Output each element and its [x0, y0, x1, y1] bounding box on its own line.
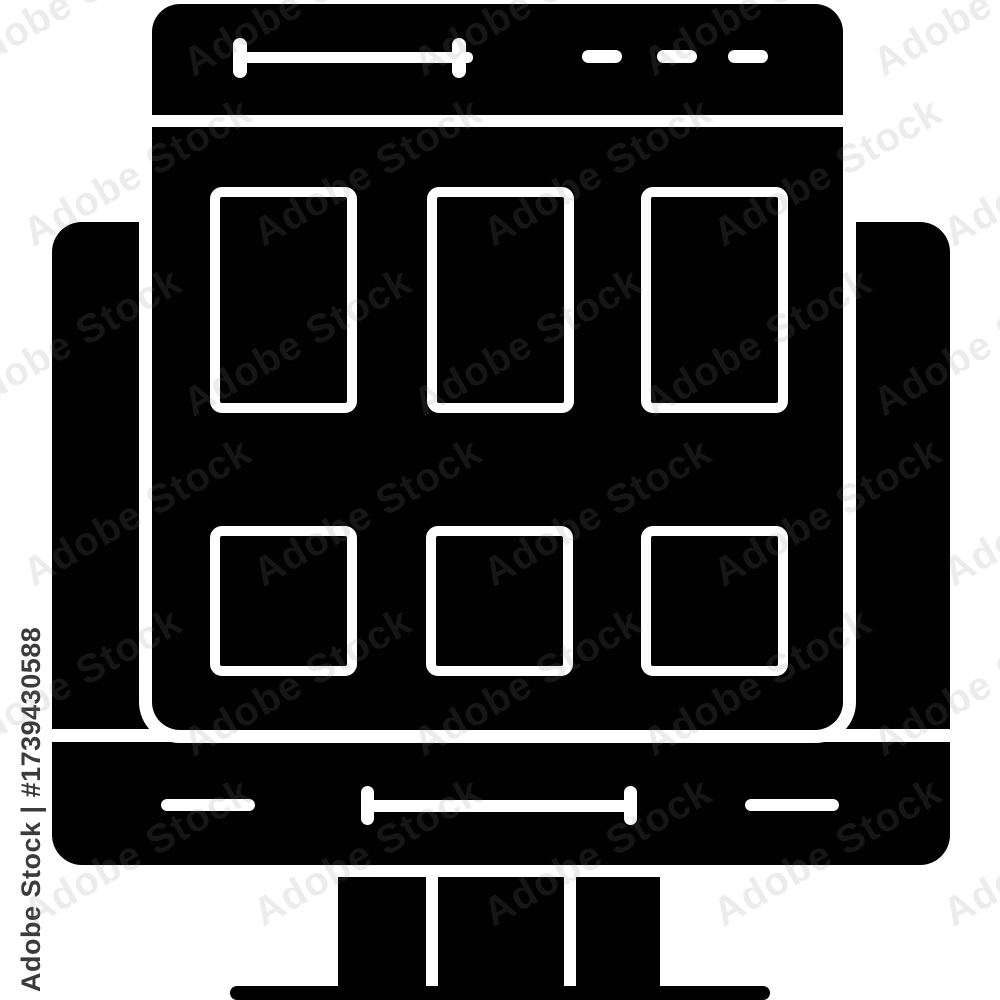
watermark-id-text: Adobe Stock | #1739430588: [16, 627, 47, 992]
watermark-tile: Adobe Stock: [866, 0, 1000, 86]
layout-panel-square-1: [210, 526, 357, 676]
layout-panel-tall-3: [641, 187, 788, 413]
layout-panel-square-2: [426, 526, 573, 676]
watermark-tile: Adobe Stock: [936, 89, 1000, 256]
stand-gap: [426, 877, 438, 989]
toolbar-dash-icon: [728, 50, 768, 63]
layout-panel-tall-2: [427, 187, 574, 413]
monitor-base-icon: [230, 986, 770, 1000]
stock-icon-canvas: Adobe Stock | #1739430588 Adobe StockAdo…: [0, 0, 1000, 1000]
bezel-center-line-right-cap: [624, 786, 637, 825]
toolbar-divider: [152, 115, 843, 127]
monitor-screen-divider: [52, 729, 950, 742]
bezel-right-dash-icon: [745, 799, 839, 811]
monitor-stand-icon: [338, 877, 660, 989]
toolbar-dash-icon: [582, 50, 622, 63]
bezel-left-dash-icon: [161, 799, 255, 811]
address-bar-icon: [240, 52, 473, 63]
toolbar-dash-icon: [657, 50, 697, 63]
address-bar-right-cap: [452, 38, 466, 78]
stand-gap: [564, 877, 576, 989]
layout-panel-tall-1: [210, 187, 357, 413]
bezel-center-line-icon: [367, 800, 630, 812]
browser-window-icon: [152, 4, 843, 730]
layout-panel-square-3: [641, 526, 788, 676]
